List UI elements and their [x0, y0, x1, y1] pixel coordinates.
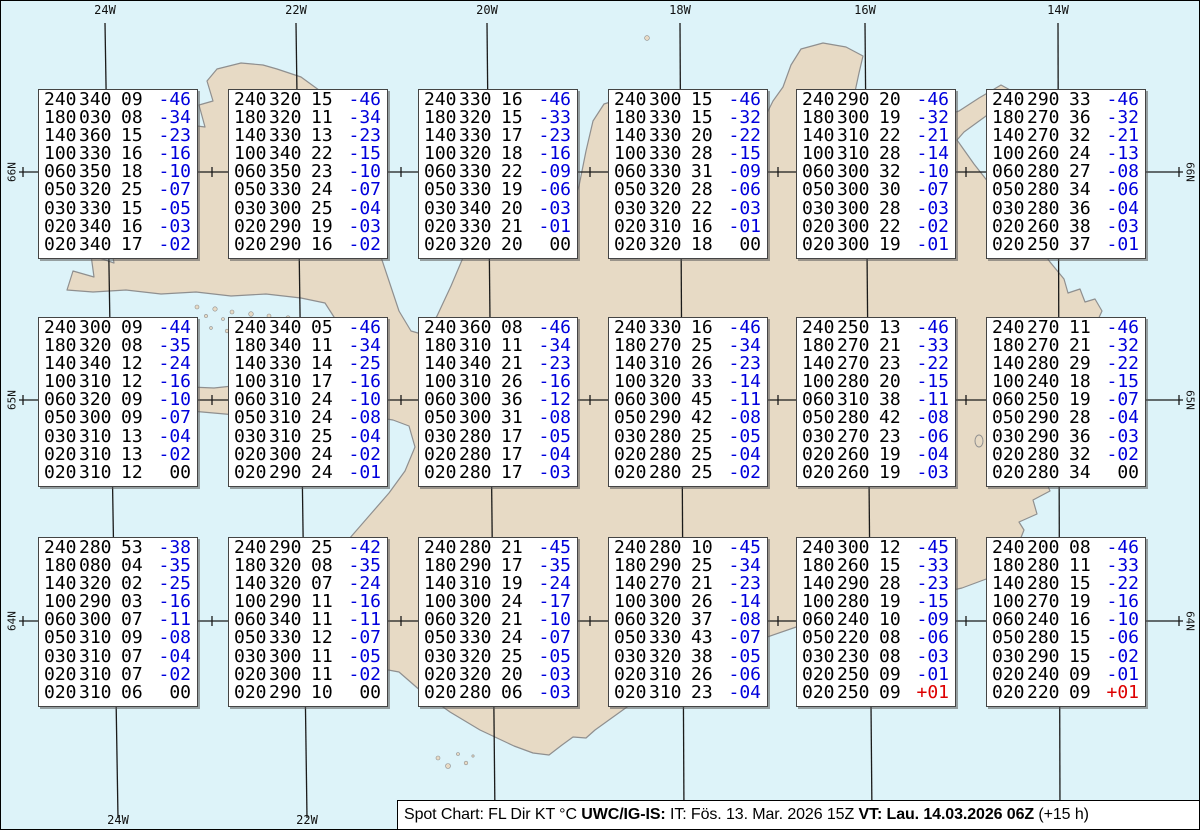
- wind-speed-field: 09: [121, 409, 145, 427]
- wind-direction-field: 280: [1027, 200, 1060, 218]
- temperature-field: -04: [145, 648, 193, 666]
- lon-label-bottom: 24W: [107, 813, 129, 827]
- temperature-field: 00: [715, 236, 763, 254]
- wind-direction-field: 290: [269, 464, 302, 482]
- temperature-field: -04: [1093, 200, 1141, 218]
- spot-box: 24033016-4618027025-3414031026-231003203…: [608, 317, 768, 487]
- spot-line: 05030009-07: [44, 409, 193, 427]
- temperature-field: -06: [1093, 629, 1141, 647]
- status-bar-segment: IT: Fös. 13. Mar. 2026 15Z: [666, 806, 859, 823]
- lat-label-right: 66N: [1184, 162, 1197, 182]
- wind-speed-field: 25: [691, 464, 715, 482]
- wind-direction-field: 330: [459, 629, 492, 647]
- flight-level-field: 050: [614, 409, 647, 427]
- lon-label-top: 22W: [285, 3, 307, 17]
- temperature-field: -03: [903, 464, 951, 482]
- temperature-field: -02: [1093, 648, 1141, 666]
- spot-line: 03031025-04: [234, 428, 383, 446]
- temperature-field: -06: [715, 181, 763, 199]
- spot-line: 0203201800: [614, 236, 763, 254]
- spot-box: 24029025-4218032008-3514032007-241002901…: [228, 537, 388, 707]
- wind-speed-field: 36: [1069, 428, 1093, 446]
- flight-level-field: 020: [234, 684, 267, 702]
- flight-level-field: 020: [614, 684, 647, 702]
- flight-level-field: 030: [802, 428, 835, 446]
- status-bar-bold-segment: UWC/IG-IS:: [581, 806, 665, 823]
- wind-direction-field: 330: [269, 629, 302, 647]
- wind-direction-field: 330: [269, 181, 302, 199]
- spot-box: 24029020-4618030019-3214031022-211003102…: [796, 89, 956, 259]
- temperature-field: -06: [903, 629, 951, 647]
- wind-speed-field: 23: [691, 684, 715, 702]
- wind-direction-field: 340: [79, 236, 112, 254]
- flight-level-field: 050: [424, 181, 457, 199]
- wind-direction-field: 280: [459, 464, 492, 482]
- flight-level-field: 050: [234, 409, 267, 427]
- flight-level-field: 030: [234, 200, 267, 218]
- wind-speed-field: 20: [501, 200, 525, 218]
- spot-line: 05033012-07: [234, 629, 383, 647]
- temperature-field: -05: [525, 428, 573, 446]
- spot-line: 03030028-03: [802, 200, 951, 218]
- spot-line: 05033024-07: [234, 181, 383, 199]
- flight-level-field: 030: [614, 200, 647, 218]
- temperature-field: -04: [715, 684, 763, 702]
- wind-direction-field: 310: [79, 684, 112, 702]
- wind-direction-field: 230: [837, 648, 870, 666]
- wind-direction-field: 280: [1027, 181, 1060, 199]
- wind-speed-field: 09: [879, 684, 903, 702]
- wind-speed-field: 15: [1069, 648, 1093, 666]
- wind-speed-field: 37: [1069, 236, 1093, 254]
- wind-direction-field: 220: [837, 629, 870, 647]
- spot-line: 03030011-05: [234, 648, 383, 666]
- spot-line: 02029016-02: [234, 236, 383, 254]
- temperature-field: -02: [335, 236, 383, 254]
- lon-label-top: 24W: [94, 3, 116, 17]
- wind-direction-field: 310: [79, 428, 112, 446]
- spot-line: 03032022-03: [614, 200, 763, 218]
- status-bar-segment: Spot Chart: FL Dir KT °C: [404, 806, 581, 823]
- wind-direction-field: 280: [1027, 629, 1060, 647]
- wind-speed-field: 17: [501, 428, 525, 446]
- wind-direction-field: 270: [837, 428, 870, 446]
- spot-line: 02025009+01: [802, 684, 951, 702]
- temperature-field: -03: [715, 200, 763, 218]
- wind-direction-field: 340: [459, 200, 492, 218]
- flight-level-field: 050: [44, 629, 77, 647]
- temperature-field: -07: [903, 181, 951, 199]
- wind-speed-field: 12: [311, 629, 335, 647]
- spot-box: 24032015-4618032011-3414033013-231003402…: [228, 89, 388, 259]
- wind-direction-field: 320: [649, 236, 682, 254]
- flight-level-field: 020: [44, 684, 77, 702]
- temperature-field: -08: [715, 409, 763, 427]
- wind-direction-field: 290: [1027, 409, 1060, 427]
- temperature-field: -01: [1093, 236, 1141, 254]
- wind-speed-field: 06: [121, 684, 145, 702]
- flight-level-field: 030: [234, 428, 267, 446]
- spot-line: 03028025-05: [614, 428, 763, 446]
- temperature-field: -02: [715, 464, 763, 482]
- spot-line: 05031024-08: [234, 409, 383, 427]
- flight-level-field: 030: [992, 200, 1025, 218]
- wind-direction-field: 320: [79, 181, 112, 199]
- spot-box: 24028010-4518029025-3414027021-231003002…: [608, 537, 768, 707]
- spot-line: 05028042-08: [802, 409, 951, 427]
- wind-speed-field: 19: [501, 181, 525, 199]
- flight-level-field: 030: [424, 200, 457, 218]
- wind-speed-field: 07: [121, 648, 145, 666]
- lon-label-bottom: 22W: [296, 813, 318, 827]
- flight-level-field: 020: [992, 236, 1025, 254]
- temperature-field: -04: [335, 428, 383, 446]
- wind-speed-field: 20: [501, 236, 525, 254]
- flight-level-field: 050: [234, 181, 267, 199]
- wind-direction-field: 220: [1027, 684, 1060, 702]
- temperature-field: 00: [145, 464, 193, 482]
- spot-box: 24027011-4618027021-3214028029-221002401…: [986, 317, 1146, 487]
- temperature-field: -05: [335, 648, 383, 666]
- spot-line: 03034020-03: [424, 200, 573, 218]
- lon-label-top: 16W: [854, 3, 876, 17]
- wind-direction-field: 280: [649, 428, 682, 446]
- spot-box: 24030015-4618033015-3214033020-221003302…: [608, 89, 768, 259]
- spot-line: 03028017-05: [424, 428, 573, 446]
- wind-direction-field: 310: [269, 409, 302, 427]
- temperature-field: 00: [145, 684, 193, 702]
- wind-direction-field: 300: [269, 200, 302, 218]
- wind-direction-field: 300: [269, 648, 302, 666]
- wind-speed-field: 13: [121, 428, 145, 446]
- wind-direction-field: 290: [1027, 648, 1060, 666]
- wind-direction-field: 320: [459, 648, 492, 666]
- spot-box: 24036008-4618031011-3414034021-231003102…: [418, 317, 578, 487]
- wind-speed-field: 15: [1069, 629, 1093, 647]
- wind-speed-field: 08: [879, 629, 903, 647]
- lon-label-top: 14W: [1047, 3, 1069, 17]
- wind-direction-field: 280: [837, 409, 870, 427]
- wind-direction-field: 330: [459, 181, 492, 199]
- temperature-field: -06: [525, 181, 573, 199]
- flight-level-field: 030: [802, 648, 835, 666]
- wind-speed-field: 31: [501, 409, 525, 427]
- spot-line: 0203101200: [44, 464, 193, 482]
- temperature-field: -01: [903, 236, 951, 254]
- wind-direction-field: 300: [837, 236, 870, 254]
- wind-direction-field: 280: [649, 464, 682, 482]
- wind-direction-field: 290: [269, 236, 302, 254]
- wind-direction-field: 290: [269, 684, 302, 702]
- spot-box: 24030012-4518026015-3314029028-231002801…: [796, 537, 956, 707]
- wind-speed-field: 10: [311, 684, 335, 702]
- temperature-field: 00: [525, 236, 573, 254]
- flight-level-field: 030: [992, 428, 1025, 446]
- spot-line: 05033043-07: [614, 629, 763, 647]
- status-bar: Spot Chart: FL Dir KT °C UWC/IG-IS: IT: …: [397, 800, 1199, 829]
- spot-chart-stage: 24W22W20W18W16W14W24W22W66N65N64N66N65N6…: [0, 0, 1200, 830]
- spot-line: 0203100600: [44, 684, 193, 702]
- temperature-field: -07: [715, 629, 763, 647]
- wind-direction-field: 300: [459, 409, 492, 427]
- temperature-field: -03: [1093, 428, 1141, 446]
- spot-box: 24030009-4418032008-3514034012-241003101…: [38, 317, 198, 487]
- wind-speed-field: 24: [501, 629, 525, 647]
- wind-speed-field: 36: [1069, 200, 1093, 218]
- wind-speed-field: 18: [691, 236, 715, 254]
- wind-speed-field: 17: [501, 464, 525, 482]
- temperature-field: -07: [145, 181, 193, 199]
- wind-direction-field: 290: [1027, 428, 1060, 446]
- temperature-field: -05: [145, 200, 193, 218]
- wind-speed-field: 19: [879, 464, 903, 482]
- temperature-field: -03: [525, 200, 573, 218]
- wind-speed-field: 42: [879, 409, 903, 427]
- spot-line: 05033024-07: [424, 629, 573, 647]
- flight-level-field: 050: [802, 409, 835, 427]
- lat-label-left: 64N: [6, 611, 19, 631]
- flight-level-field: 050: [234, 629, 267, 647]
- temperature-field: -04: [335, 200, 383, 218]
- spot-line: 05028034-06: [992, 181, 1141, 199]
- wind-direction-field: 300: [837, 181, 870, 199]
- flight-level-field: 020: [424, 464, 457, 482]
- spot-line: 03029015-02: [992, 648, 1141, 666]
- spot-line: 05030031-08: [424, 409, 573, 427]
- spot-line: 02028025-02: [614, 464, 763, 482]
- temperature-field: -05: [715, 428, 763, 446]
- spot-line: 05031009-08: [44, 629, 193, 647]
- wind-speed-field: 08: [879, 648, 903, 666]
- flight-level-field: 020: [992, 464, 1025, 482]
- flight-level-field: 030: [424, 648, 457, 666]
- spot-line: 02026019-03: [802, 464, 951, 482]
- spot-box: 24020008-4618028011-3314028015-221002701…: [986, 537, 1146, 707]
- wind-direction-field: 280: [459, 684, 492, 702]
- temperature-field: +01: [903, 684, 951, 702]
- flight-level-field: 030: [614, 648, 647, 666]
- flight-level-field: 020: [44, 236, 77, 254]
- temperature-field: -03: [903, 200, 951, 218]
- wind-speed-field: 43: [691, 629, 715, 647]
- spot-line: 05032025-07: [44, 181, 193, 199]
- wind-speed-field: 28: [1069, 409, 1093, 427]
- temperature-field: -07: [145, 409, 193, 427]
- spot-line: 02022009+01: [992, 684, 1141, 702]
- wind-direction-field: 260: [837, 464, 870, 482]
- spot-line: 03023008-03: [802, 648, 951, 666]
- status-bar-bold-segment: VT: Lau. 14.03.2026 06Z: [858, 806, 1034, 823]
- flight-level-field: 020: [424, 236, 457, 254]
- wind-speed-field: 28: [691, 181, 715, 199]
- temperature-field: -07: [335, 629, 383, 647]
- spot-line: 03027023-06: [802, 428, 951, 446]
- flight-level-field: 050: [424, 629, 457, 647]
- temperature-field: -06: [1093, 181, 1141, 199]
- wind-speed-field: 11: [311, 648, 335, 666]
- wind-direction-field: 310: [79, 464, 112, 482]
- wind-speed-field: 34: [1069, 181, 1093, 199]
- flight-level-field: 020: [424, 684, 457, 702]
- spot-line: 03033015-05: [44, 200, 193, 218]
- wind-speed-field: 34: [1069, 464, 1093, 482]
- temperature-field: 00: [335, 684, 383, 702]
- spot-line: 03032025-05: [424, 648, 573, 666]
- wind-speed-field: 12: [121, 464, 145, 482]
- temperature-field: -04: [145, 428, 193, 446]
- wind-direction-field: 320: [649, 648, 682, 666]
- temperature-field: -03: [525, 464, 573, 482]
- spot-line: 05033019-06: [424, 181, 573, 199]
- wind-speed-field: 24: [311, 181, 335, 199]
- spot-line: 02034017-02: [44, 236, 193, 254]
- spot-line: 05032028-06: [614, 181, 763, 199]
- spot-line: 03031013-04: [44, 428, 193, 446]
- flight-level-field: 020: [802, 464, 835, 482]
- wind-direction-field: 250: [1027, 236, 1060, 254]
- spot-line: 02031023-04: [614, 684, 763, 702]
- spot-line: 0202901000: [234, 684, 383, 702]
- flight-level-field: 020: [234, 464, 267, 482]
- temperature-field: +01: [1093, 684, 1141, 702]
- wind-direction-field: 280: [1027, 464, 1060, 482]
- temperature-field: 00: [1093, 464, 1141, 482]
- temperature-field: -08: [335, 409, 383, 427]
- wind-speed-field: 09: [121, 629, 145, 647]
- wind-direction-field: 290: [649, 409, 682, 427]
- flight-level-field: 050: [614, 181, 647, 199]
- wind-speed-field: 19: [879, 236, 903, 254]
- spot-box: 24034005-4618034011-3414033014-251003101…: [228, 317, 388, 487]
- spot-box: 24028021-4518029017-3514031019-241003002…: [418, 537, 578, 707]
- wind-direction-field: 310: [79, 648, 112, 666]
- wind-direction-field: 280: [459, 428, 492, 446]
- temperature-field: -03: [525, 684, 573, 702]
- spot-box: 24029033-4618027036-3214027032-211002602…: [986, 89, 1146, 259]
- temperature-field: -08: [525, 409, 573, 427]
- flight-level-field: 030: [44, 428, 77, 446]
- spot-line: 05028015-06: [992, 629, 1141, 647]
- flight-level-field: 050: [992, 409, 1025, 427]
- temperature-field: -08: [903, 409, 951, 427]
- wind-speed-field: 25: [501, 648, 525, 666]
- flight-level-field: 050: [614, 629, 647, 647]
- wind-direction-field: 320: [459, 236, 492, 254]
- flight-level-field: 030: [44, 200, 77, 218]
- spot-line: 03028036-04: [992, 200, 1141, 218]
- temperature-field: -05: [715, 648, 763, 666]
- wind-speed-field: 09: [1069, 684, 1093, 702]
- flight-level-field: 030: [234, 648, 267, 666]
- wind-speed-field: 23: [879, 428, 903, 446]
- flight-level-field: 020: [802, 684, 835, 702]
- wind-speed-field: 24: [311, 409, 335, 427]
- temperature-field: -02: [145, 236, 193, 254]
- flight-level-field: 020: [614, 236, 647, 254]
- spot-line: 02030019-01: [802, 236, 951, 254]
- wind-speed-field: 42: [691, 409, 715, 427]
- wind-direction-field: 310: [269, 428, 302, 446]
- wind-speed-field: 38: [691, 648, 715, 666]
- spot-box: 24033016-4618032015-3314033017-231003201…: [418, 89, 578, 259]
- flight-level-field: 050: [992, 181, 1025, 199]
- flight-level-field: 050: [802, 181, 835, 199]
- wind-direction-field: 320: [649, 181, 682, 199]
- wind-direction-field: 320: [649, 200, 682, 218]
- flight-level-field: 030: [614, 428, 647, 446]
- spot-line: 0203202000: [424, 236, 573, 254]
- flight-level-field: 050: [802, 629, 835, 647]
- temperature-field: -01: [335, 464, 383, 482]
- spot-line: 03031007-04: [44, 648, 193, 666]
- flight-level-field: 030: [44, 648, 77, 666]
- lon-label-top: 18W: [669, 3, 691, 17]
- flight-level-field: 030: [802, 200, 835, 218]
- spot-line: 02029024-01: [234, 464, 383, 482]
- spot-line: 02028006-03: [424, 684, 573, 702]
- spot-line: 03032038-05: [614, 648, 763, 666]
- lon-label-top: 20W: [476, 3, 498, 17]
- wind-speed-field: 24: [311, 464, 335, 482]
- wind-direction-field: 330: [649, 629, 682, 647]
- temperature-field: -08: [145, 629, 193, 647]
- spot-line: 03030025-04: [234, 200, 383, 218]
- wind-speed-field: 25: [311, 200, 335, 218]
- spot-line: 05030030-07: [802, 181, 951, 199]
- wind-speed-field: 25: [121, 181, 145, 199]
- status-bar-segment: (+15 h): [1034, 806, 1089, 823]
- wind-direction-field: 250: [837, 684, 870, 702]
- wind-speed-field: 30: [879, 181, 903, 199]
- flight-level-field: 050: [424, 409, 457, 427]
- flight-level-field: 030: [424, 428, 457, 446]
- lat-label-left: 65N: [6, 390, 19, 410]
- flight-level-field: 020: [44, 464, 77, 482]
- spot-box: 24025013-4618027021-3314027023-221002802…: [796, 317, 956, 487]
- temperature-field: -04: [1093, 409, 1141, 427]
- flight-level-field: 050: [992, 629, 1025, 647]
- spot-line: 0202803400: [992, 464, 1141, 482]
- wind-direction-field: 330: [79, 200, 112, 218]
- wind-speed-field: 28: [879, 200, 903, 218]
- wind-speed-field: 25: [691, 428, 715, 446]
- temperature-field: -06: [903, 428, 951, 446]
- flight-level-field: 020: [234, 236, 267, 254]
- spot-line: 05022008-06: [802, 629, 951, 647]
- flight-level-field: 020: [992, 684, 1025, 702]
- temperature-field: -03: [903, 648, 951, 666]
- wind-direction-field: 300: [79, 409, 112, 427]
- flight-level-field: 020: [802, 236, 835, 254]
- flight-level-field: 020: [614, 464, 647, 482]
- spot-line: 02025037-01: [992, 236, 1141, 254]
- lat-label-right: 65N: [1184, 390, 1197, 410]
- wind-direction-field: 310: [79, 629, 112, 647]
- wind-speed-field: 16: [311, 236, 335, 254]
- wind-direction-field: 300: [837, 200, 870, 218]
- wind-speed-field: 22: [691, 200, 715, 218]
- wind-speed-field: 25: [311, 428, 335, 446]
- wind-direction-field: 310: [649, 684, 682, 702]
- spot-line: 03029036-03: [992, 428, 1141, 446]
- temperature-field: -07: [335, 181, 383, 199]
- spot-line: 05029028-04: [992, 409, 1141, 427]
- wind-speed-field: 17: [121, 236, 145, 254]
- wind-speed-field: 15: [121, 200, 145, 218]
- flight-level-field: 050: [44, 181, 77, 199]
- temperature-field: -05: [525, 648, 573, 666]
- spot-box: 24034009-4618003008-3414036015-231003301…: [38, 89, 198, 259]
